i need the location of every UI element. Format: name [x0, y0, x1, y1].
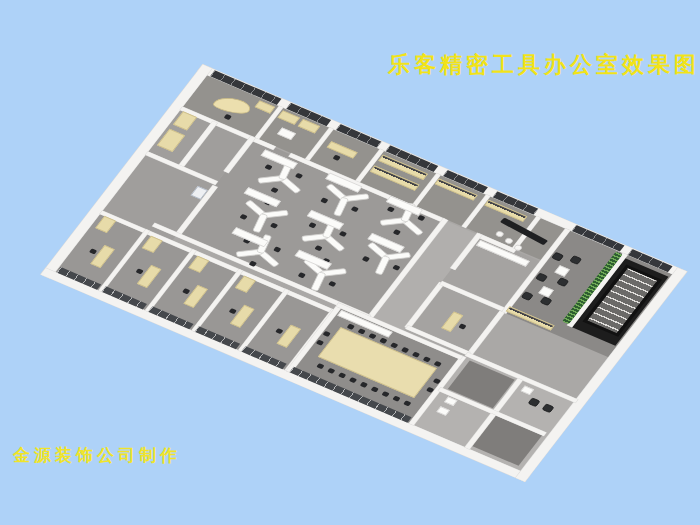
page-background: { "page": { "background": "#aed2f8" }, "… — [0, 0, 700, 525]
floorplan-scene — [55, 75, 673, 471]
page-title: 乐客精密工具办公室效果图 — [388, 50, 700, 80]
credit-text: 金源装饰公司制作 — [13, 444, 181, 467]
